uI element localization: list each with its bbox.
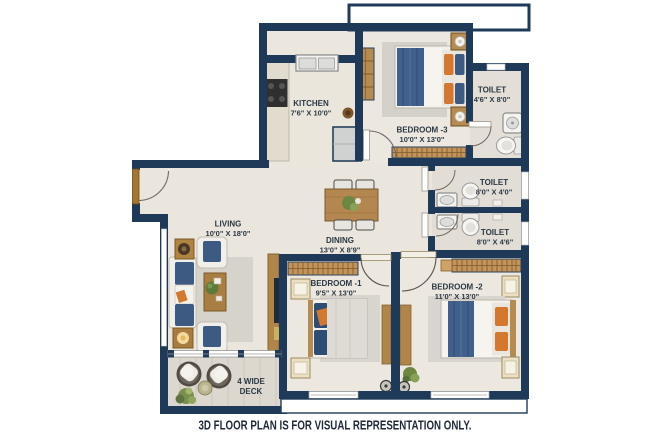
svg-text:TOILET: TOILET bbox=[480, 178, 508, 187]
svg-text:8'0" X 4'6": 8'0" X 4'6" bbox=[477, 238, 514, 247]
svg-text:TOILET: TOILET bbox=[478, 86, 506, 95]
svg-text:DECK: DECK bbox=[240, 387, 263, 396]
svg-text:LIVING: LIVING bbox=[215, 220, 242, 229]
svg-text:BEDROOM -3: BEDROOM -3 bbox=[396, 126, 448, 135]
svg-text:3D FLOOR PLAN IS FOR VISUAL RE: 3D FLOOR PLAN IS FOR VISUAL REPRESENTATI… bbox=[199, 418, 472, 433]
svg-text:7'6" X 10'0": 7'6" X 10'0" bbox=[291, 109, 332, 118]
svg-text:DINING: DINING bbox=[326, 236, 354, 245]
svg-text:10'0" X 13'0": 10'0" X 13'0" bbox=[400, 135, 445, 144]
svg-text:4 WIDE: 4 WIDE bbox=[237, 377, 265, 386]
svg-text:13'0" X 8'9": 13'0" X 8'9" bbox=[320, 246, 361, 255]
svg-text:4'6" X 8'0": 4'6" X 8'0" bbox=[474, 95, 511, 104]
svg-text:TOILET: TOILET bbox=[481, 228, 509, 237]
svg-text:BEDROOM -1: BEDROOM -1 bbox=[310, 279, 362, 288]
svg-text:9'5" X 13'0": 9'5" X 13'0" bbox=[316, 289, 357, 298]
svg-text:11'0" X 13'0": 11'0" X 13'0" bbox=[435, 292, 480, 301]
svg-text:BEDROOM -2: BEDROOM -2 bbox=[431, 283, 483, 292]
svg-text:KITCHEN: KITCHEN bbox=[293, 99, 329, 108]
svg-text:10'0" X 18'0": 10'0" X 18'0" bbox=[206, 229, 251, 238]
svg-text:8'0" X 4'0": 8'0" X 4'0" bbox=[476, 188, 513, 197]
